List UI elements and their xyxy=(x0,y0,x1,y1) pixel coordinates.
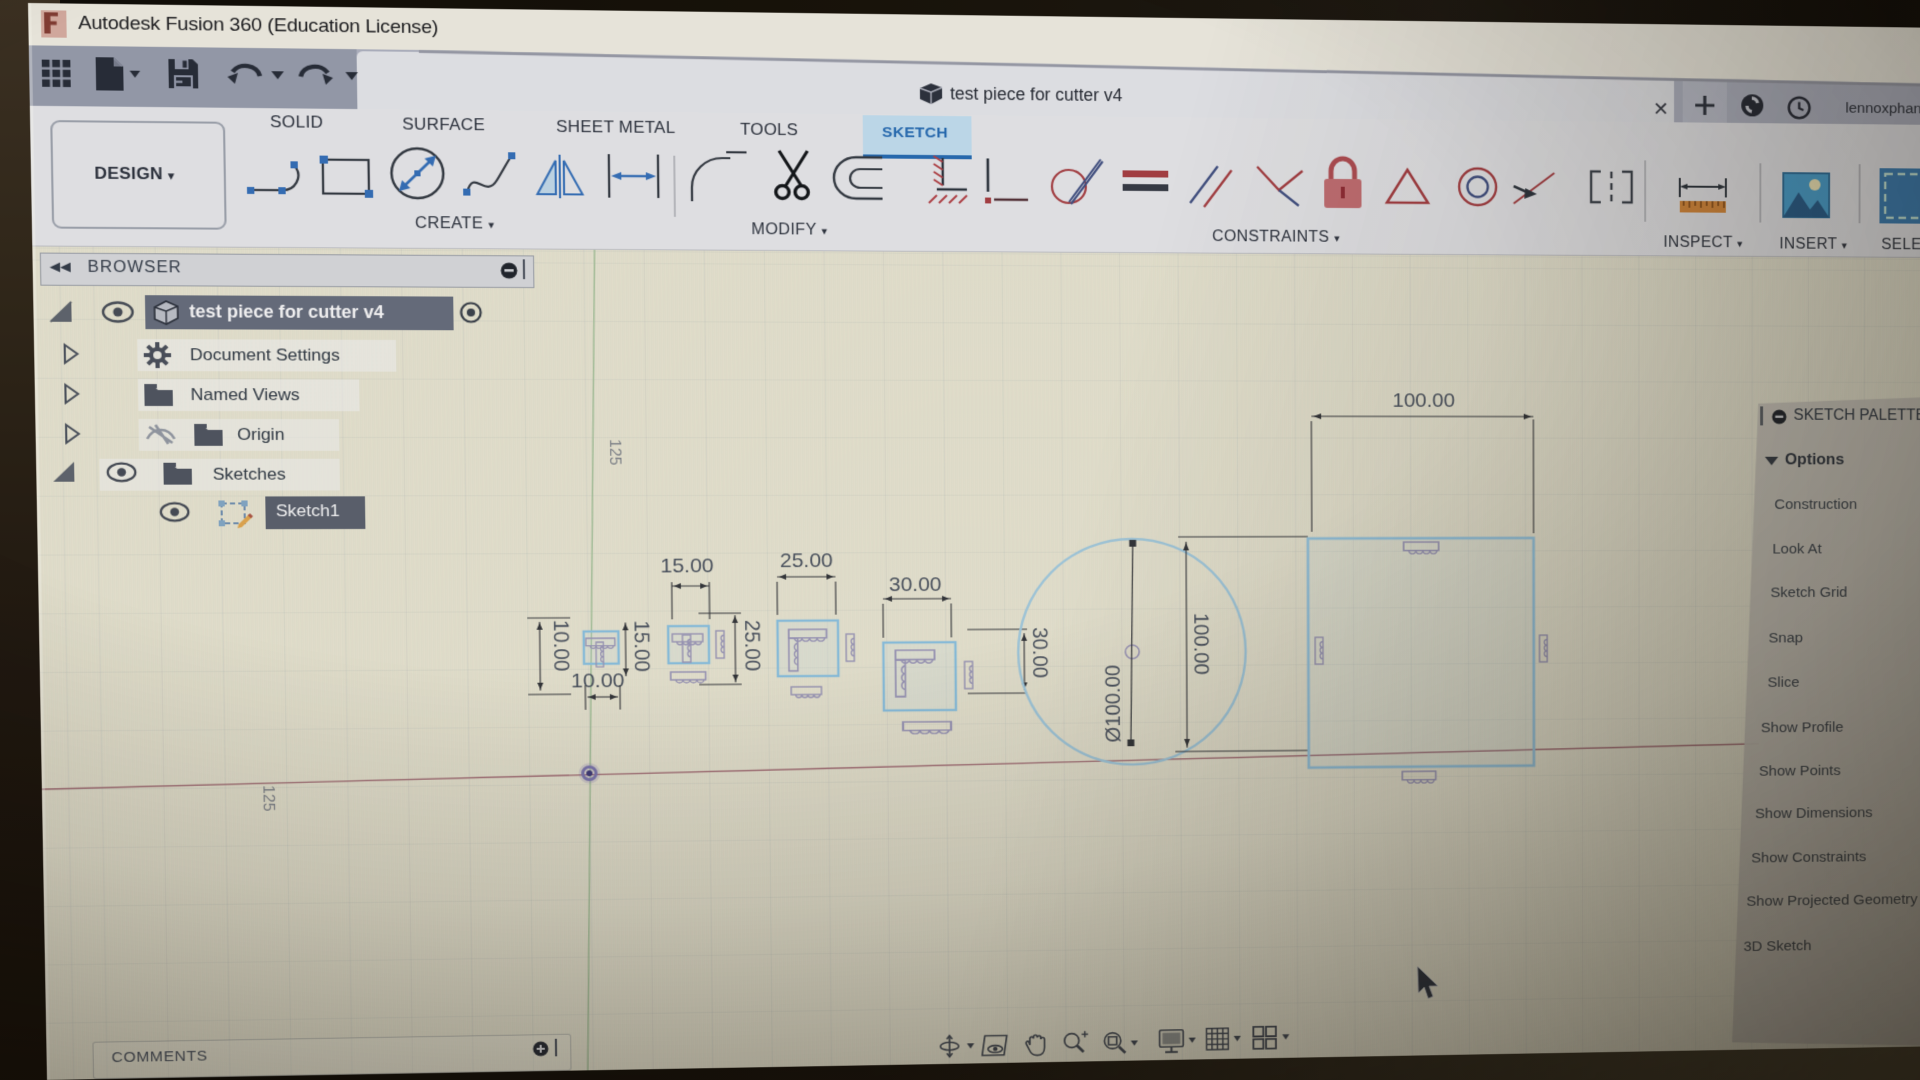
svg-text:125: 125 xyxy=(606,439,625,465)
svg-text:25.00: 25.00 xyxy=(780,548,833,572)
svg-text:100.00: 100.00 xyxy=(1190,613,1214,675)
svg-text:10.00: 10.00 xyxy=(571,668,625,692)
svg-text:15.00: 15.00 xyxy=(630,620,655,672)
svg-text:125: 125 xyxy=(259,785,278,811)
svg-text:30.00: 30.00 xyxy=(1028,627,1052,678)
svg-text:100.00: 100.00 xyxy=(1392,388,1455,411)
svg-text:25.00: 25.00 xyxy=(740,620,765,671)
svg-text:15.00: 15.00 xyxy=(660,553,714,577)
svg-text:10.00: 10.00 xyxy=(549,620,574,672)
svg-text:Ø100.00: Ø100.00 xyxy=(1100,665,1124,743)
svg-text:30.00: 30.00 xyxy=(889,572,942,596)
